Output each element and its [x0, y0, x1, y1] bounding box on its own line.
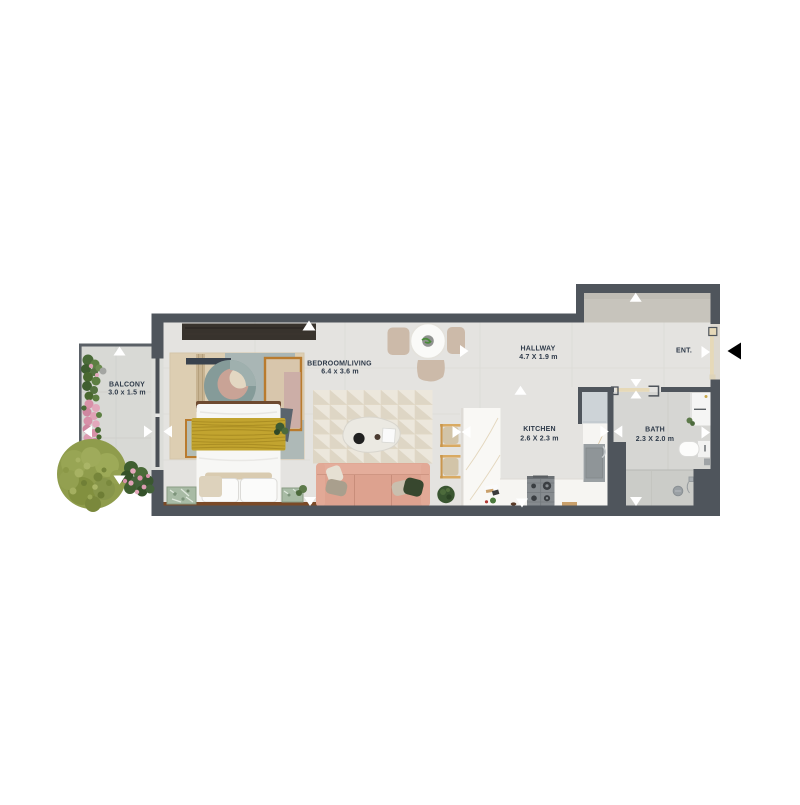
svg-text:3.0 x 1.5 m: 3.0 x 1.5 m — [108, 390, 146, 397]
svg-text:HALLWAY: HALLWAY — [521, 346, 556, 353]
svg-text:BATH: BATH — [645, 427, 665, 434]
svg-text:4.7 X 1.9 m: 4.7 X 1.9 m — [519, 354, 557, 361]
svg-text:BALCONY: BALCONY — [109, 382, 145, 389]
svg-text:2.3 X 2.0 m: 2.3 X 2.0 m — [636, 436, 674, 443]
svg-text:2.6 X 2.3 m: 2.6 X 2.3 m — [520, 435, 558, 442]
svg-text:6.4 x 3.6 m: 6.4 x 3.6 m — [321, 369, 359, 376]
svg-text:BEDROOM/LIVING: BEDROOM/LIVING — [307, 361, 372, 368]
svg-text:KITCHEN: KITCHEN — [523, 426, 556, 433]
svg-text:ENT.: ENT. — [676, 348, 692, 355]
